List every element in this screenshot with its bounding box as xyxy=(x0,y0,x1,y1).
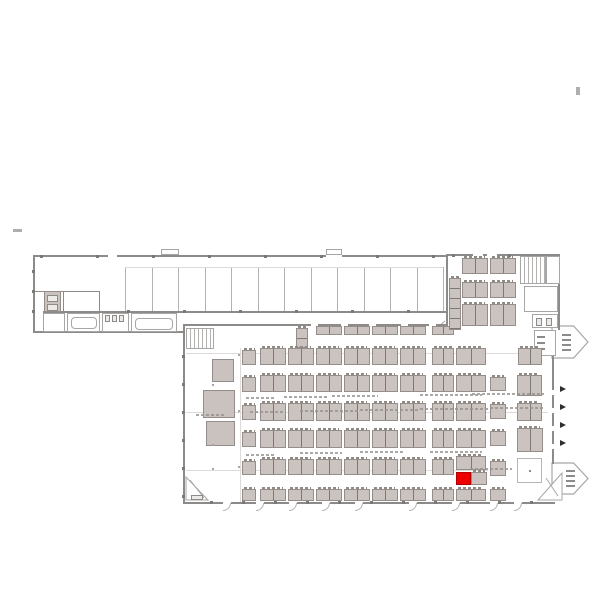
booth-cluster[interactable] xyxy=(344,375,370,392)
label-smudge xyxy=(196,414,226,416)
column-tick xyxy=(508,254,511,257)
booth-cluster[interactable] xyxy=(344,326,370,335)
column-tick xyxy=(242,501,245,504)
label-smudge xyxy=(472,393,544,395)
booth-cluster[interactable] xyxy=(432,430,454,448)
door-opening xyxy=(473,254,483,256)
entrance-arrow-icon xyxy=(560,386,566,392)
booth-cluster[interactable] xyxy=(449,278,461,330)
booth-cluster[interactable] xyxy=(432,403,454,421)
door-opening xyxy=(326,255,342,257)
fixture xyxy=(105,315,110,322)
booth-cluster[interactable] xyxy=(456,403,486,421)
column-tick xyxy=(407,310,410,313)
booth-cluster[interactable] xyxy=(462,258,488,274)
column-tick xyxy=(182,411,185,414)
booth-cluster[interactable] xyxy=(456,348,486,365)
label-smudge xyxy=(360,409,420,411)
booth-cluster[interactable] xyxy=(490,377,506,391)
fixture xyxy=(47,295,58,302)
booth-cluster[interactable] xyxy=(490,489,506,501)
booth-cluster[interactable] xyxy=(456,430,486,448)
selected-booth-highlight[interactable] xyxy=(456,472,471,485)
door-opening xyxy=(369,324,376,326)
booth-cluster[interactable] xyxy=(242,489,256,501)
entrance-arrow-icon xyxy=(560,440,566,446)
door-opening xyxy=(552,426,554,431)
fixture xyxy=(536,318,542,326)
column-tick xyxy=(152,255,155,258)
booth-cluster[interactable] xyxy=(260,375,286,392)
booth-cluster[interactable] xyxy=(242,377,256,392)
pavilion-block[interactable] xyxy=(206,421,235,446)
door-opening xyxy=(429,324,436,326)
booth-cluster[interactable] xyxy=(316,430,342,448)
room-partition xyxy=(390,267,391,311)
column-tick xyxy=(96,255,99,258)
room-outline xyxy=(161,249,179,255)
booth-cluster[interactable] xyxy=(372,348,398,365)
booth-cluster[interactable] xyxy=(316,459,342,475)
column-tick xyxy=(127,310,130,313)
room-outline xyxy=(43,313,65,332)
booth-cluster[interactable] xyxy=(490,282,516,298)
booth-cluster[interactable] xyxy=(344,489,370,501)
booth-cluster[interactable] xyxy=(260,348,286,365)
door-opening xyxy=(311,324,318,326)
column-tick xyxy=(274,501,277,504)
booth-cluster[interactable] xyxy=(260,430,286,448)
fixture xyxy=(112,315,117,322)
booth-cluster[interactable] xyxy=(316,375,342,392)
entrance-arrow-icon xyxy=(560,422,566,428)
plan-overlay xyxy=(0,0,600,600)
column-tick xyxy=(320,255,323,258)
fixture xyxy=(562,349,571,351)
column-tick xyxy=(182,355,185,358)
booth-cluster[interactable] xyxy=(372,326,398,335)
column-tick xyxy=(338,501,341,504)
column-tick xyxy=(530,501,533,504)
label-smudge xyxy=(470,468,512,470)
room-partition xyxy=(311,267,312,311)
fixture xyxy=(537,336,545,338)
stairs xyxy=(520,256,546,284)
fixture xyxy=(537,342,545,344)
booth-cluster[interactable] xyxy=(490,431,506,446)
door-opening xyxy=(341,324,348,326)
fixture xyxy=(191,495,203,500)
wall xyxy=(446,254,448,326)
booth-cluster[interactable] xyxy=(462,282,488,298)
booth-cluster[interactable] xyxy=(288,375,314,392)
column-dot xyxy=(238,410,240,412)
booth-cluster[interactable] xyxy=(432,375,454,392)
column-tick xyxy=(376,255,379,258)
column-tick xyxy=(182,495,185,498)
tiny-annotation xyxy=(576,87,580,95)
room-partition xyxy=(258,267,259,311)
fixture xyxy=(119,315,124,322)
booth-cluster[interactable] xyxy=(296,328,308,348)
entrance-arrow-icon xyxy=(560,404,566,410)
column-tick xyxy=(182,467,185,470)
column-dot xyxy=(238,466,240,468)
door-opening xyxy=(487,254,497,256)
booth-cluster[interactable] xyxy=(372,375,398,392)
column-dot xyxy=(212,384,214,386)
column-tick xyxy=(210,501,213,504)
column-tick xyxy=(208,255,211,258)
booth-cluster[interactable] xyxy=(288,348,314,365)
label-smudge xyxy=(284,396,328,398)
fixture xyxy=(562,339,571,341)
booth-cluster[interactable] xyxy=(400,430,426,448)
column-tick xyxy=(295,310,298,313)
booth-cluster[interactable] xyxy=(432,348,454,365)
booth-cluster[interactable] xyxy=(288,459,314,475)
fixture xyxy=(562,344,571,346)
booth-cluster[interactable] xyxy=(400,403,426,421)
room-partition xyxy=(205,267,206,311)
booth-cluster[interactable] xyxy=(344,348,370,365)
booth-cluster[interactable] xyxy=(242,350,256,365)
booth-cluster[interactable] xyxy=(316,489,342,501)
room-partition xyxy=(125,267,126,311)
booth-cluster[interactable] xyxy=(344,430,370,448)
booth-cluster[interactable] xyxy=(471,472,487,485)
booth-cluster[interactable] xyxy=(260,489,286,501)
room-outline xyxy=(546,256,560,284)
column-tick xyxy=(264,255,267,258)
label-smudge xyxy=(250,411,284,413)
booth-cluster[interactable] xyxy=(400,489,426,501)
room-partition xyxy=(443,267,444,311)
booth-cluster[interactable] xyxy=(288,403,314,421)
column-tick xyxy=(32,310,35,313)
wall xyxy=(33,255,35,333)
booth-cluster[interactable] xyxy=(400,348,426,365)
room-partition xyxy=(178,267,179,311)
booth-cluster[interactable] xyxy=(372,489,398,501)
label-smudge xyxy=(360,451,404,453)
room-partition xyxy=(337,267,338,311)
column-tick xyxy=(452,254,455,257)
tiny-annotation xyxy=(13,229,22,232)
booth-cluster[interactable] xyxy=(456,375,486,392)
aisle-line xyxy=(240,348,241,502)
column-tick xyxy=(402,501,405,504)
column-tick xyxy=(32,290,35,293)
booth-cluster[interactable] xyxy=(400,459,426,475)
exit-vestibule xyxy=(552,326,588,358)
column-tick xyxy=(40,255,43,258)
booth-cluster[interactable] xyxy=(490,258,516,274)
floor-plan-canvas xyxy=(0,0,600,600)
booth-cluster[interactable] xyxy=(490,304,516,326)
door-opening xyxy=(552,444,554,449)
table-outline xyxy=(71,317,97,329)
door-opening xyxy=(401,324,408,326)
column-tick xyxy=(351,310,354,313)
room-partition xyxy=(364,267,365,311)
booth-cluster[interactable] xyxy=(344,459,370,475)
room-partition xyxy=(231,267,232,311)
fixture xyxy=(566,470,575,472)
room-partition xyxy=(152,267,153,311)
label-smudge xyxy=(246,454,274,456)
column-dot xyxy=(212,444,214,446)
label-smudge xyxy=(420,408,490,410)
booth-cluster[interactable] xyxy=(372,459,398,475)
booth-cluster[interactable] xyxy=(260,459,286,475)
door-opening xyxy=(552,390,554,395)
booth-cluster[interactable] xyxy=(316,326,342,335)
column-tick xyxy=(370,501,373,504)
column-dot xyxy=(238,354,240,356)
booth-cluster[interactable] xyxy=(432,489,454,501)
booth-cluster[interactable] xyxy=(372,430,398,448)
room-partition xyxy=(417,267,418,311)
booth-cluster[interactable] xyxy=(316,348,342,365)
booth-cluster[interactable] xyxy=(316,403,342,421)
booth-cluster[interactable] xyxy=(432,459,454,475)
booth-cluster[interactable] xyxy=(288,430,314,448)
booth-cluster[interactable] xyxy=(288,489,314,501)
booth-cluster[interactable] xyxy=(400,375,426,392)
room-outline xyxy=(524,286,558,312)
column-dot xyxy=(212,468,214,470)
booth-cluster[interactable] xyxy=(344,403,370,421)
door-opening xyxy=(108,255,117,257)
booth-cluster[interactable] xyxy=(456,489,486,501)
label-smudge xyxy=(490,407,545,409)
fixture xyxy=(566,475,575,477)
fixture xyxy=(566,480,575,482)
stairs xyxy=(186,328,214,349)
fixture xyxy=(546,318,552,326)
column-tick xyxy=(434,501,437,504)
booth-cluster[interactable] xyxy=(517,403,542,421)
fixture xyxy=(566,485,575,487)
column-tick xyxy=(239,310,242,313)
table-outline xyxy=(135,318,173,330)
column-tick xyxy=(182,439,185,442)
label-smudge xyxy=(300,452,342,454)
label-smudge xyxy=(430,451,482,453)
booth-cluster[interactable] xyxy=(242,432,256,447)
wall xyxy=(183,324,185,504)
fixture xyxy=(47,304,58,311)
booth-cluster[interactable] xyxy=(518,348,542,365)
booth-cluster[interactable] xyxy=(400,326,426,335)
column-tick xyxy=(32,270,35,273)
booth-cluster[interactable] xyxy=(462,304,488,326)
label-smudge xyxy=(300,410,360,412)
column-tick xyxy=(466,501,469,504)
booth-cluster[interactable] xyxy=(517,428,543,452)
booth-cluster[interactable] xyxy=(372,403,398,421)
fixture xyxy=(562,334,571,336)
open-booth-space[interactable] xyxy=(517,458,542,483)
aisle-line xyxy=(125,267,443,268)
column-tick xyxy=(182,383,185,386)
column-tick xyxy=(432,255,435,258)
column-tick xyxy=(498,501,501,504)
booth-cluster[interactable] xyxy=(242,461,256,475)
pavilion-block[interactable] xyxy=(212,359,234,382)
label-smudge xyxy=(332,395,378,397)
room-partition xyxy=(284,267,285,311)
door-opening xyxy=(552,408,554,413)
column-tick xyxy=(183,310,186,313)
column-tick xyxy=(306,501,309,504)
label-smudge xyxy=(246,397,276,399)
